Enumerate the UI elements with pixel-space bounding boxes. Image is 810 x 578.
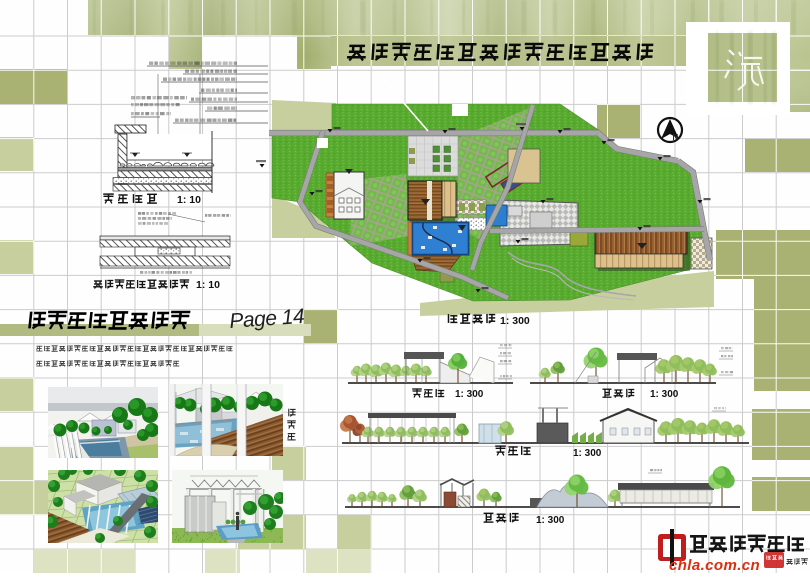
svg-text:1: 10: 1: 10 [196, 279, 220, 291]
svg-text:N: N [673, 133, 679, 142]
svg-text:1: 300: 1: 300 [536, 515, 565, 526]
svg-text:chla.com.cn: chla.com.cn [669, 557, 760, 573]
svg-text:1: 300: 1: 300 [573, 448, 602, 459]
svg-text:1: 10: 1: 10 [177, 194, 201, 206]
svg-text:1: 300: 1: 300 [650, 389, 679, 400]
svg-text:1: 300: 1: 300 [455, 389, 484, 400]
svg-text:1: 300: 1: 300 [500, 315, 530, 327]
